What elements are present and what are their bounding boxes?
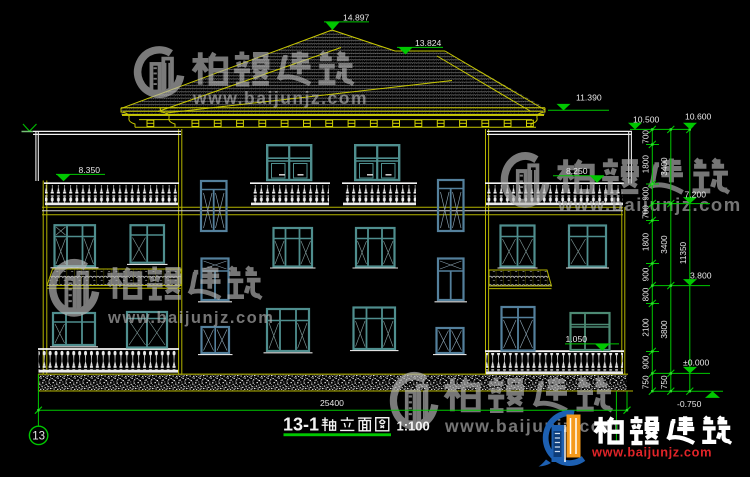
svg-text:3800: 3800: [660, 320, 669, 339]
svg-text:www.baijunjz.com: www.baijunjz.com: [107, 309, 274, 327]
svg-text:1800: 1800: [642, 232, 651, 251]
svg-text:25400: 25400: [320, 398, 344, 408]
svg-text:1:100: 1:100: [397, 419, 430, 434]
svg-text:8.250: 8.250: [566, 166, 588, 176]
svg-text:www.baijunjz.com: www.baijunjz.com: [444, 416, 620, 436]
svg-text:8.350: 8.350: [79, 165, 101, 175]
svg-text:3400: 3400: [660, 235, 669, 254]
svg-text:11.390: 11.390: [576, 93, 602, 103]
svg-text:10.500: 10.500: [633, 115, 660, 125]
svg-text:900: 900: [642, 267, 651, 281]
svg-text:1800: 1800: [642, 155, 651, 174]
svg-text:750: 750: [642, 375, 651, 389]
svg-text:10.600: 10.600: [685, 111, 712, 121]
svg-text:±0.000: ±0.000: [683, 358, 709, 368]
svg-text:1.050: 1.050: [566, 334, 588, 344]
svg-text:14.897: 14.897: [343, 12, 370, 22]
svg-text:11350: 11350: [679, 241, 688, 264]
svg-text:900: 900: [642, 187, 651, 201]
svg-text:www.baijunjz.com: www.baijunjz.com: [192, 88, 368, 108]
svg-text:900: 900: [642, 355, 651, 369]
svg-text:13: 13: [32, 431, 45, 443]
svg-text:7.200: 7.200: [685, 189, 707, 199]
svg-text:3400: 3400: [660, 157, 669, 176]
svg-text:-0.750: -0.750: [677, 399, 702, 409]
svg-text:3.800: 3.800: [690, 271, 712, 281]
svg-text:13.824: 13.824: [415, 38, 442, 48]
svg-text:700: 700: [642, 205, 651, 219]
svg-text:800: 800: [642, 287, 651, 301]
svg-text:700: 700: [642, 130, 651, 144]
svg-text:2100: 2100: [642, 318, 651, 337]
svg-text:750: 750: [660, 375, 669, 389]
svg-text:www.baijunjz.com: www.baijunjz.com: [591, 445, 712, 460]
svg-text:13-1: 13-1: [283, 415, 319, 435]
